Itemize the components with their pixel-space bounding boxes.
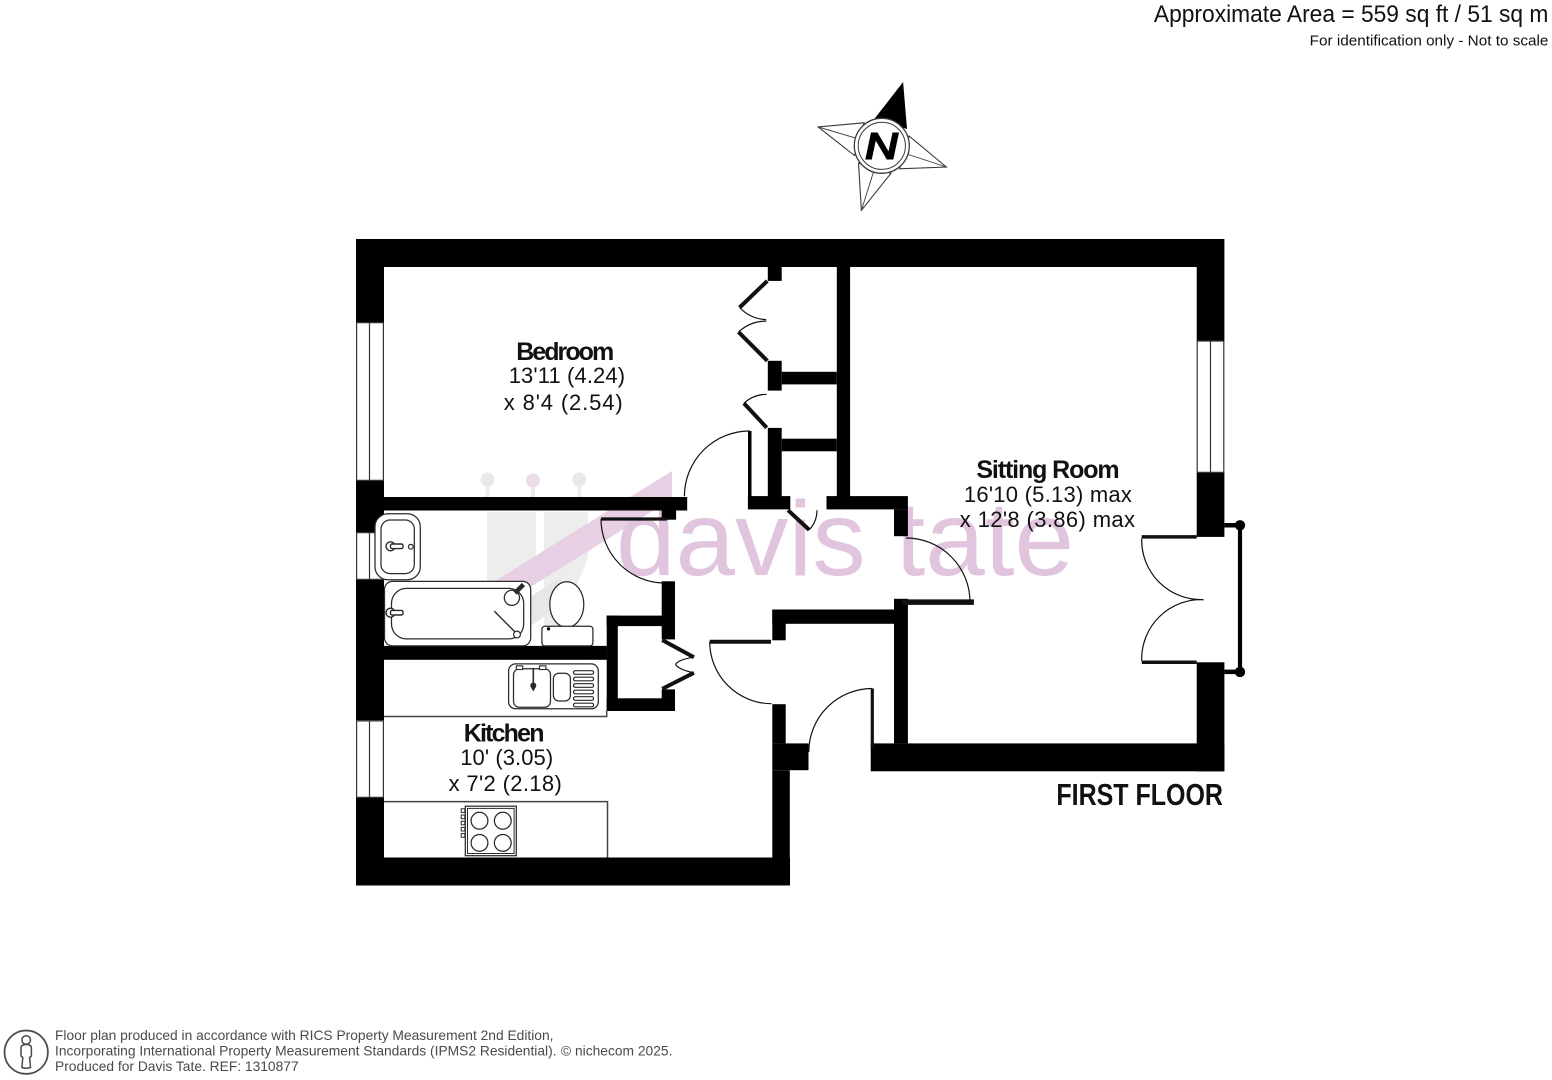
svg-text:Approximate Area = 559 sq ft /: Approximate Area = 559 sq ft / 51 sq m [1154, 1, 1549, 28]
svg-text:Bedroom: Bedroom [516, 338, 614, 366]
svg-text:Sitting Room: Sitting Room [976, 456, 1119, 484]
svg-text:x 7'2 (2.18): x 7'2 (2.18) [449, 771, 562, 796]
svg-text:Kitchen: Kitchen [464, 719, 545, 747]
svg-text:FIRST FLOOR: FIRST FLOOR [1056, 777, 1223, 811]
svg-text:Incorporating International Pr: Incorporating International Property Mea… [55, 1044, 557, 1059]
svg-text:Floor plan produced in accorda: Floor plan produced in accordance with R… [55, 1028, 553, 1043]
svg-text:x 8'4 (2.54): x 8'4 (2.54) [504, 390, 623, 415]
svg-text:13'11 (4.24): 13'11 (4.24) [509, 363, 625, 388]
svg-text:16'10 (5.13) max: 16'10 (5.13) max [964, 482, 1132, 507]
svg-text:For identification only - Not: For identification only - Not to scale [1310, 32, 1549, 49]
svg-text:Produced for Davis Tate. REF: Produced for Davis Tate. REF: 1310877 [55, 1059, 299, 1074]
svg-text:x 12'8 (3.86) max: x 12'8 (3.86) max [960, 507, 1135, 532]
svg-text:© nichecom 2025.: © nichecom 2025. [561, 1044, 672, 1059]
svg-text:10' (3.05): 10' (3.05) [460, 745, 553, 770]
